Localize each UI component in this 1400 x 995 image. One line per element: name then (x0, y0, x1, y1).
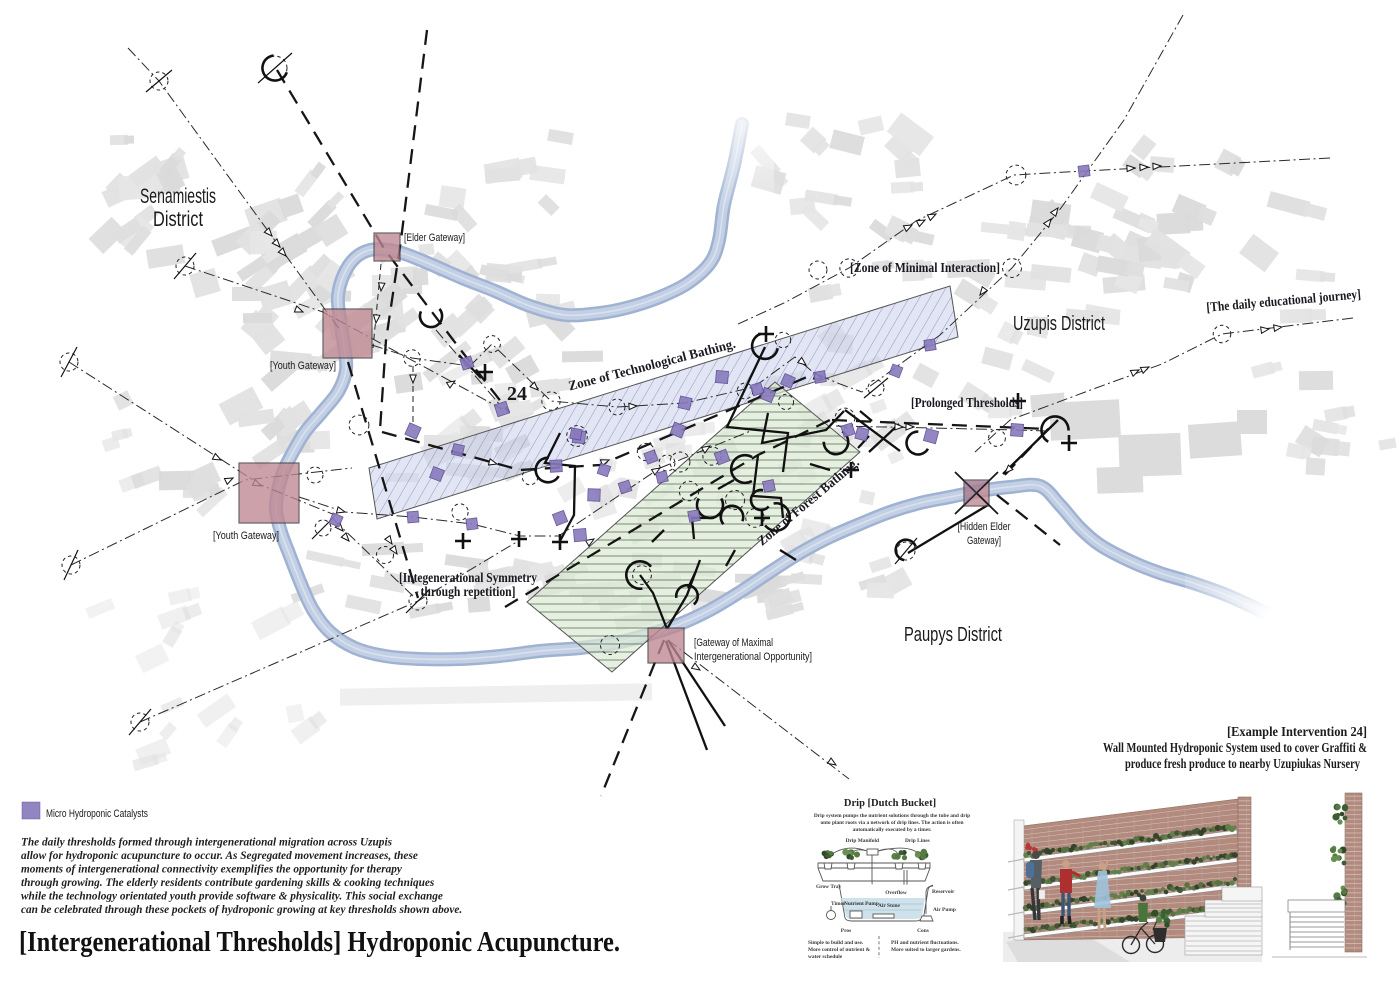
svg-text:Micro Hydroponic Catalysts: Micro Hydroponic Catalysts (46, 808, 148, 820)
svg-text:Overflow: Overflow (885, 890, 907, 896)
svg-text:Reservoir: Reservoir (932, 889, 955, 895)
svg-text:Air Pump: Air Pump (933, 907, 956, 913)
svg-text:Senamiestis: Senamiestis (140, 185, 216, 208)
svg-text:[Gateway of Maximal: [Gateway of Maximal (694, 637, 773, 649)
svg-text:District: District (153, 208, 203, 231)
svg-text:Gateway]: Gateway] (967, 535, 1001, 547)
svg-text:More control of nutrient &: More control of nutrient & (808, 947, 871, 953)
svg-text:Air Stone: Air Stone (878, 903, 901, 909)
svg-text:[Intergenerational Thresholds]: [Intergenerational Thresholds] Hydroponi… (19, 927, 620, 958)
svg-text:[Youth Gateway]: [Youth Gateway] (213, 530, 279, 542)
svg-text:[Example Intervention 24]: [Example Intervention 24] (1227, 724, 1367, 739)
svg-text:[Zone of Minimal Interaction]: [Zone of Minimal Interaction] (850, 260, 1000, 275)
svg-text:Intergenerational Opportunity]: Intergenerational Opportunity] (694, 651, 812, 663)
svg-text:Paupys District: Paupys District (904, 624, 1002, 646)
svg-text:moments of intergenerational: moments of intergenerational connectivit… (21, 864, 403, 876)
svg-text:onto plant roots via a network: onto plant roots via a network of drip l… (820, 820, 963, 826)
svg-text:Drip Lines: Drip Lines (905, 838, 930, 844)
svg-text:Pros: Pros (841, 928, 851, 934)
svg-text:More suited to larger gardens.: More suited to larger gardens. (891, 947, 961, 953)
svg-text:through growing. The elderly r: through growing. The elderly residents c… (21, 877, 435, 889)
svg-text:Uzupis District: Uzupis District (1013, 313, 1105, 335)
svg-text:Wall Mounted Hydroponic System: Wall Mounted Hydroponic System used to c… (1103, 740, 1367, 755)
svg-text:PH and nutrient fluctuations.: PH and nutrient fluctuations. (891, 940, 959, 946)
svg-text:water schedule: water schedule (808, 954, 843, 960)
svg-text:[Integenerational Symmetry: [Integenerational Symmetry (399, 570, 537, 585)
svg-text:[Prolonged Thresholds]: [Prolonged Thresholds] (911, 395, 1023, 410)
svg-text:Nutrient Pump: Nutrient Pump (844, 901, 879, 907)
svg-text:Drip [Dutch Bucket]: Drip [Dutch Bucket] (844, 798, 936, 809)
svg-text:allow for hydroponic acupunctu: allow for hydroponic acupuncture to occu… (21, 850, 418, 862)
svg-text:Drip Manifold: Drip Manifold (846, 838, 879, 844)
svg-text:can be celebrated through thes: can be celebrated through these pockets … (21, 904, 462, 916)
svg-text:produce fresh produce to nearb: produce fresh produce to nearby Uzupiuka… (1125, 756, 1360, 771)
svg-text:while the technology orientate: while the technology orientated youth pr… (21, 891, 443, 903)
svg-text:Grow Tray: Grow Tray (816, 884, 842, 890)
svg-text:Drip system pumps the nutrient: Drip system pumps the nutrient solutions… (814, 813, 970, 819)
svg-text:[Youth Gateway]: [Youth Gateway] (270, 360, 336, 372)
svg-text:through repetition]: through repetition] (421, 584, 516, 599)
svg-text:automatically executed by a ti: automatically executed by a timer. (853, 827, 932, 833)
svg-text:Cons: Cons (917, 928, 929, 934)
svg-text:[Hidden Elder: [Hidden Elder (958, 521, 1011, 533)
svg-text:24: 24 (507, 383, 527, 405)
svg-text:The daily thresholds formed th: The daily thresholds formed through inte… (21, 837, 393, 849)
svg-text:[Elder Gateway]: [Elder Gateway] (404, 232, 465, 244)
svg-text:Simple to build and use.: Simple to build and use. (808, 940, 864, 946)
